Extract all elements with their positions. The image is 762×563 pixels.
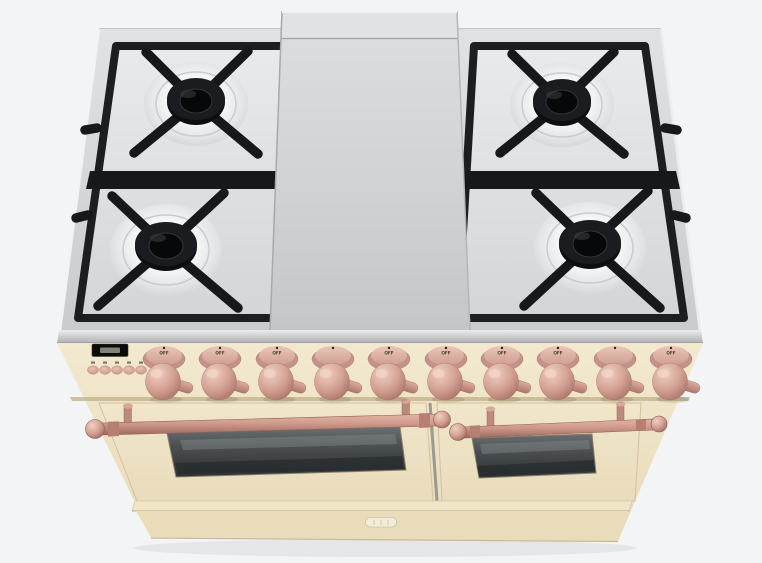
- burner-cap-back-left: [167, 78, 225, 125]
- knob-label: OFF: [441, 351, 450, 356]
- knob-pointer-dot-icon: [614, 347, 616, 349]
- button-glyph-icon: [91, 362, 95, 364]
- burner-cap-back-right: [533, 79, 591, 126]
- handle-ball-left-end: [450, 424, 467, 441]
- knob-ball: [540, 363, 575, 400]
- knob-pointer-dot-icon: [670, 347, 672, 349]
- cooktop: [57, 11, 703, 343]
- cooktop-front-band: [57, 330, 703, 343]
- knob-highlight: [489, 369, 501, 378]
- knob-pointer-dot-icon: [219, 347, 221, 349]
- knob-pointer-dot-icon: [388, 347, 390, 349]
- knob-label: OFF: [553, 351, 562, 356]
- button-glyph-icon: [115, 362, 119, 364]
- brand-badge: [366, 518, 397, 528]
- knob-ball: [259, 363, 294, 400]
- knob-pointer-dot-icon: [276, 347, 278, 349]
- knob-highlight: [433, 369, 445, 378]
- knob-highlight: [264, 369, 276, 378]
- knob-highlight: [320, 369, 332, 378]
- knob-ball: [484, 363, 519, 400]
- kick-panel: [132, 501, 632, 542]
- knob-ball: [371, 363, 406, 400]
- burner-cap-front-left: [135, 222, 197, 271]
- knob-label: OFF: [497, 351, 506, 356]
- griddle-back-rim: [281, 11, 458, 38]
- knob-ball: [597, 363, 632, 400]
- grate-mid-bar-right: [462, 171, 680, 189]
- knob-ball: [146, 363, 181, 400]
- knob-ball: [202, 363, 237, 400]
- clock-display: [92, 344, 128, 357]
- knob-ball: [653, 363, 688, 400]
- knob-pointer-dot-icon: [163, 347, 165, 349]
- display-glow: [100, 348, 120, 354]
- griddle-plate: [270, 11, 470, 331]
- knob-pointer-dot-icon: [501, 347, 503, 349]
- oven-window-left: [167, 427, 406, 477]
- knob-label: OFF: [159, 351, 168, 356]
- handle-ball-right-end: [651, 416, 667, 432]
- range-product-render: OFFOFFOFFOFFOFFOFFOFFOFF: [0, 0, 762, 563]
- knob-highlight: [545, 369, 557, 378]
- button-glyph-icon: [103, 362, 107, 364]
- knob-highlight: [658, 369, 670, 378]
- knob-label: OFF: [666, 351, 675, 356]
- knob-label: OFF: [272, 351, 281, 356]
- knob-pointer-dot-icon: [445, 347, 447, 349]
- knob-ball: [428, 363, 463, 400]
- handle-ball-right-end: [434, 411, 451, 428]
- button-glyph-icon: [139, 362, 143, 364]
- floor-shadow: [133, 539, 637, 557]
- handle-ball-left-end: [86, 420, 105, 439]
- knob-highlight: [602, 369, 614, 378]
- burner-well-left: [76, 46, 304, 318]
- knob-highlight: [151, 369, 163, 378]
- knob-label: OFF: [384, 351, 393, 356]
- burner-well-right: [458, 46, 686, 318]
- knob-pointer-dot-icon: [557, 347, 559, 349]
- oven-window-right: [472, 434, 596, 478]
- knob-ball: [315, 363, 350, 400]
- burner-cap-front-right: [559, 220, 621, 269]
- base-ledge: [132, 501, 632, 511]
- knob-label: OFF: [215, 351, 224, 356]
- range-3d-illustration: OFFOFFOFFOFFOFFOFFOFFOFF: [0, 0, 762, 563]
- button-glyph-icon: [127, 362, 131, 364]
- knob-highlight: [207, 369, 219, 378]
- front-face: OFFOFFOFFOFFOFFOFFOFFOFF: [57, 343, 703, 542]
- grate-mid-bar-left: [86, 171, 302, 189]
- knob-pointer-dot-icon: [332, 347, 334, 349]
- knob-highlight: [376, 369, 388, 378]
